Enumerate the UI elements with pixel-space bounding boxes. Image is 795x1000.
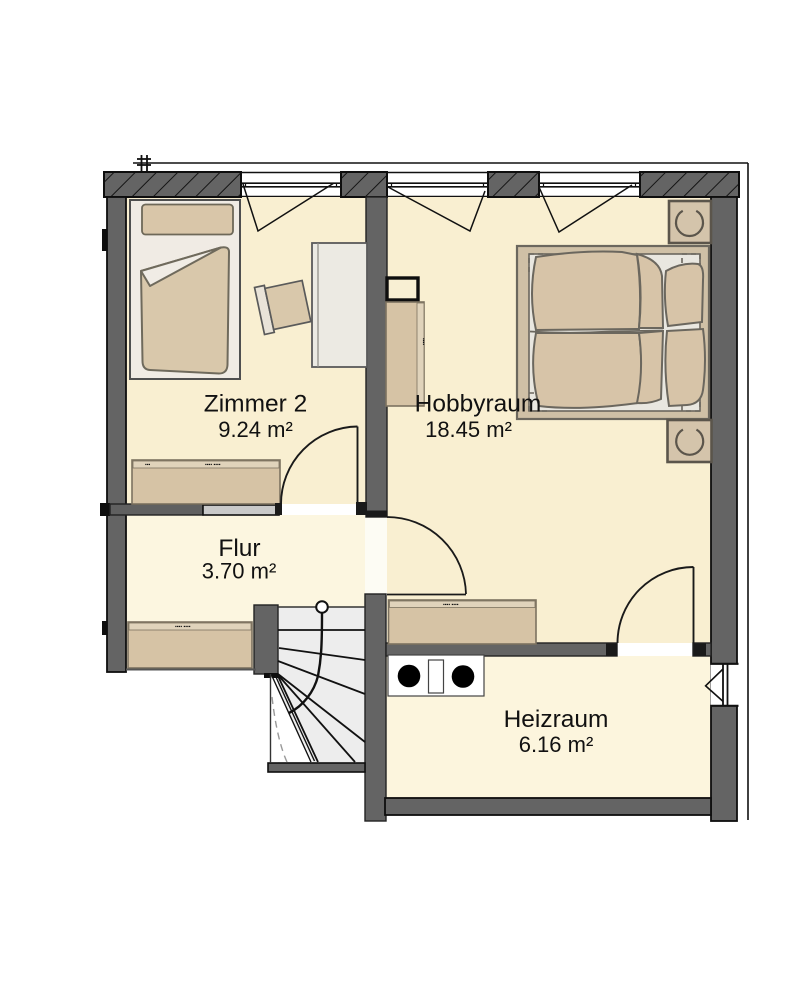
svg-text:18.45 m²: 18.45 m² <box>425 417 512 442</box>
svg-text:▪▪▪▪ ▪▪▪▪: ▪▪▪▪ ▪▪▪▪ <box>175 624 191 630</box>
svg-text:6.16 m²: 6.16 m² <box>519 732 594 757</box>
svg-text:Hobbyraum: Hobbyraum <box>415 391 542 418</box>
svg-text:Heizraum: Heizraum <box>504 706 609 733</box>
svg-text:Zimmer 2: Zimmer 2 <box>204 391 307 418</box>
svg-text:▪▪▪▪ ▪▪▪▪: ▪▪▪▪ ▪▪▪▪ <box>205 462 221 468</box>
svg-text:3.70 m²: 3.70 m² <box>202 559 277 584</box>
svg-text:▪▪▪: ▪▪▪ <box>145 462 151 468</box>
svg-text:▪▪▪▪ ▪▪▪▪: ▪▪▪▪ ▪▪▪▪ <box>443 602 459 608</box>
svg-text:9.24 m²: 9.24 m² <box>218 417 293 442</box>
svg-text:▪▪▪▪: ▪▪▪▪ <box>420 338 426 345</box>
